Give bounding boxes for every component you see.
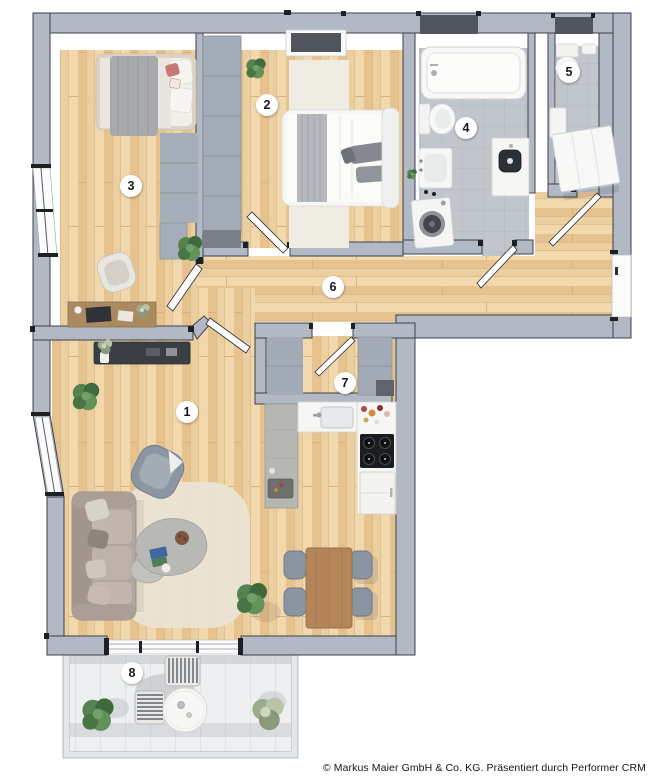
room-badge-5: 5: [558, 61, 580, 83]
vanity: [492, 138, 529, 196]
room-badge-2: 2: [256, 94, 278, 116]
balcony-chair-left: [135, 691, 165, 724]
wall-living-top: [33, 326, 193, 340]
pillow: [87, 528, 110, 549]
pillow: [85, 559, 107, 580]
balcony-chair-top: [165, 656, 200, 686]
faucet-icon: [431, 70, 437, 76]
room-number: 8: [129, 666, 136, 680]
kitchen-sink: [321, 407, 353, 428]
cup: [187, 713, 192, 718]
balcony: [63, 652, 298, 758]
balcony-table: [163, 688, 207, 732]
window-recess-wc: [555, 17, 593, 34]
low-cabinet: [203, 230, 241, 248]
bathtub: [421, 47, 526, 99]
balcony-plant-icon: [82, 698, 113, 731]
washing-machine: [411, 197, 454, 248]
wall-storage-left: [255, 338, 266, 398]
wardrobe: [203, 36, 241, 248]
cup: [178, 702, 185, 709]
room-number: 4: [463, 121, 470, 135]
pillow: [169, 87, 193, 113]
bowl: [175, 531, 189, 545]
laptop-icon: [86, 306, 112, 323]
room-badge-8: 8: [121, 662, 143, 684]
room-number: 7: [342, 376, 349, 390]
accent-pillow: [169, 78, 180, 89]
armrest: [72, 604, 136, 620]
entrance-door: [610, 250, 631, 321]
headboard: [382, 108, 399, 208]
toaster-icon: [268, 479, 293, 498]
toilet: [419, 104, 455, 134]
desk: [68, 302, 156, 327]
wall-right-living: [396, 336, 415, 655]
plant-icon: [246, 58, 265, 78]
balcony-sliding-door: [104, 638, 243, 655]
small-plant-icon: [407, 169, 417, 179]
kitchen-counter-top: [298, 402, 357, 432]
storage-box: [376, 380, 394, 396]
room-number: 3: [128, 179, 135, 193]
copyright-text: © Markus Maier GmbH & Co. KG. Präsentier…: [0, 762, 646, 774]
kitchen-counter-right: [357, 402, 396, 514]
cooktop: [360, 434, 394, 468]
wall-storage-top-left: [255, 323, 312, 338]
candle: [162, 564, 171, 573]
sideboard: [94, 339, 190, 364]
room-number: 2: [264, 98, 271, 112]
faucet-icon: [509, 144, 513, 148]
room-badge-1: 1: [176, 401, 198, 423]
floor-hallway: [196, 256, 613, 322]
room-badge-7: 7: [334, 372, 356, 394]
wall-bottom-right: [241, 636, 415, 655]
room-number: 5: [566, 65, 573, 79]
kitchen-island: [265, 404, 298, 508]
dining-chair: [284, 588, 306, 616]
dining-chair: [350, 588, 372, 616]
wall-left-lower: [47, 497, 64, 638]
plant-icon: [237, 583, 267, 614]
cup: [75, 307, 82, 314]
floor-plan: 1 2 3 4 5 6 7 8 © Markus Maier GmbH & Co…: [0, 0, 653, 779]
wall-storage-top-right: [353, 323, 415, 338]
door-handle: [615, 267, 618, 275]
floor-plan-drawing: 1 2 3 4 5 6 7 8: [0, 0, 653, 779]
wall-wing-bottom: [396, 315, 631, 338]
wall-bath-bottom-b: [515, 240, 533, 254]
room-number: 1: [184, 405, 191, 419]
room-badge-6: 6: [322, 276, 344, 298]
cabinet-handle: [390, 488, 393, 497]
bed-single: [96, 54, 196, 136]
bed-double: [282, 108, 399, 208]
plant-icon: [178, 236, 202, 261]
deco-box: [146, 348, 160, 356]
sofa: [72, 492, 144, 620]
dining-chair: [284, 551, 306, 579]
deco-box: [166, 348, 177, 356]
cistern-box: [582, 44, 596, 54]
dining-chair: [350, 551, 372, 579]
notepad: [118, 310, 134, 322]
plant-icon: [73, 383, 99, 411]
floor-hallway-arm: [535, 192, 613, 262]
room-badge-4: 4: [455, 117, 477, 139]
room-number: 6: [330, 280, 337, 294]
wall-bottom-left: [47, 636, 107, 655]
window-recess-bedroom2: [291, 33, 341, 52]
dining-set: [284, 548, 378, 628]
window-recess-bathroom: [420, 15, 478, 34]
room-badge-3: 3: [120, 175, 142, 197]
